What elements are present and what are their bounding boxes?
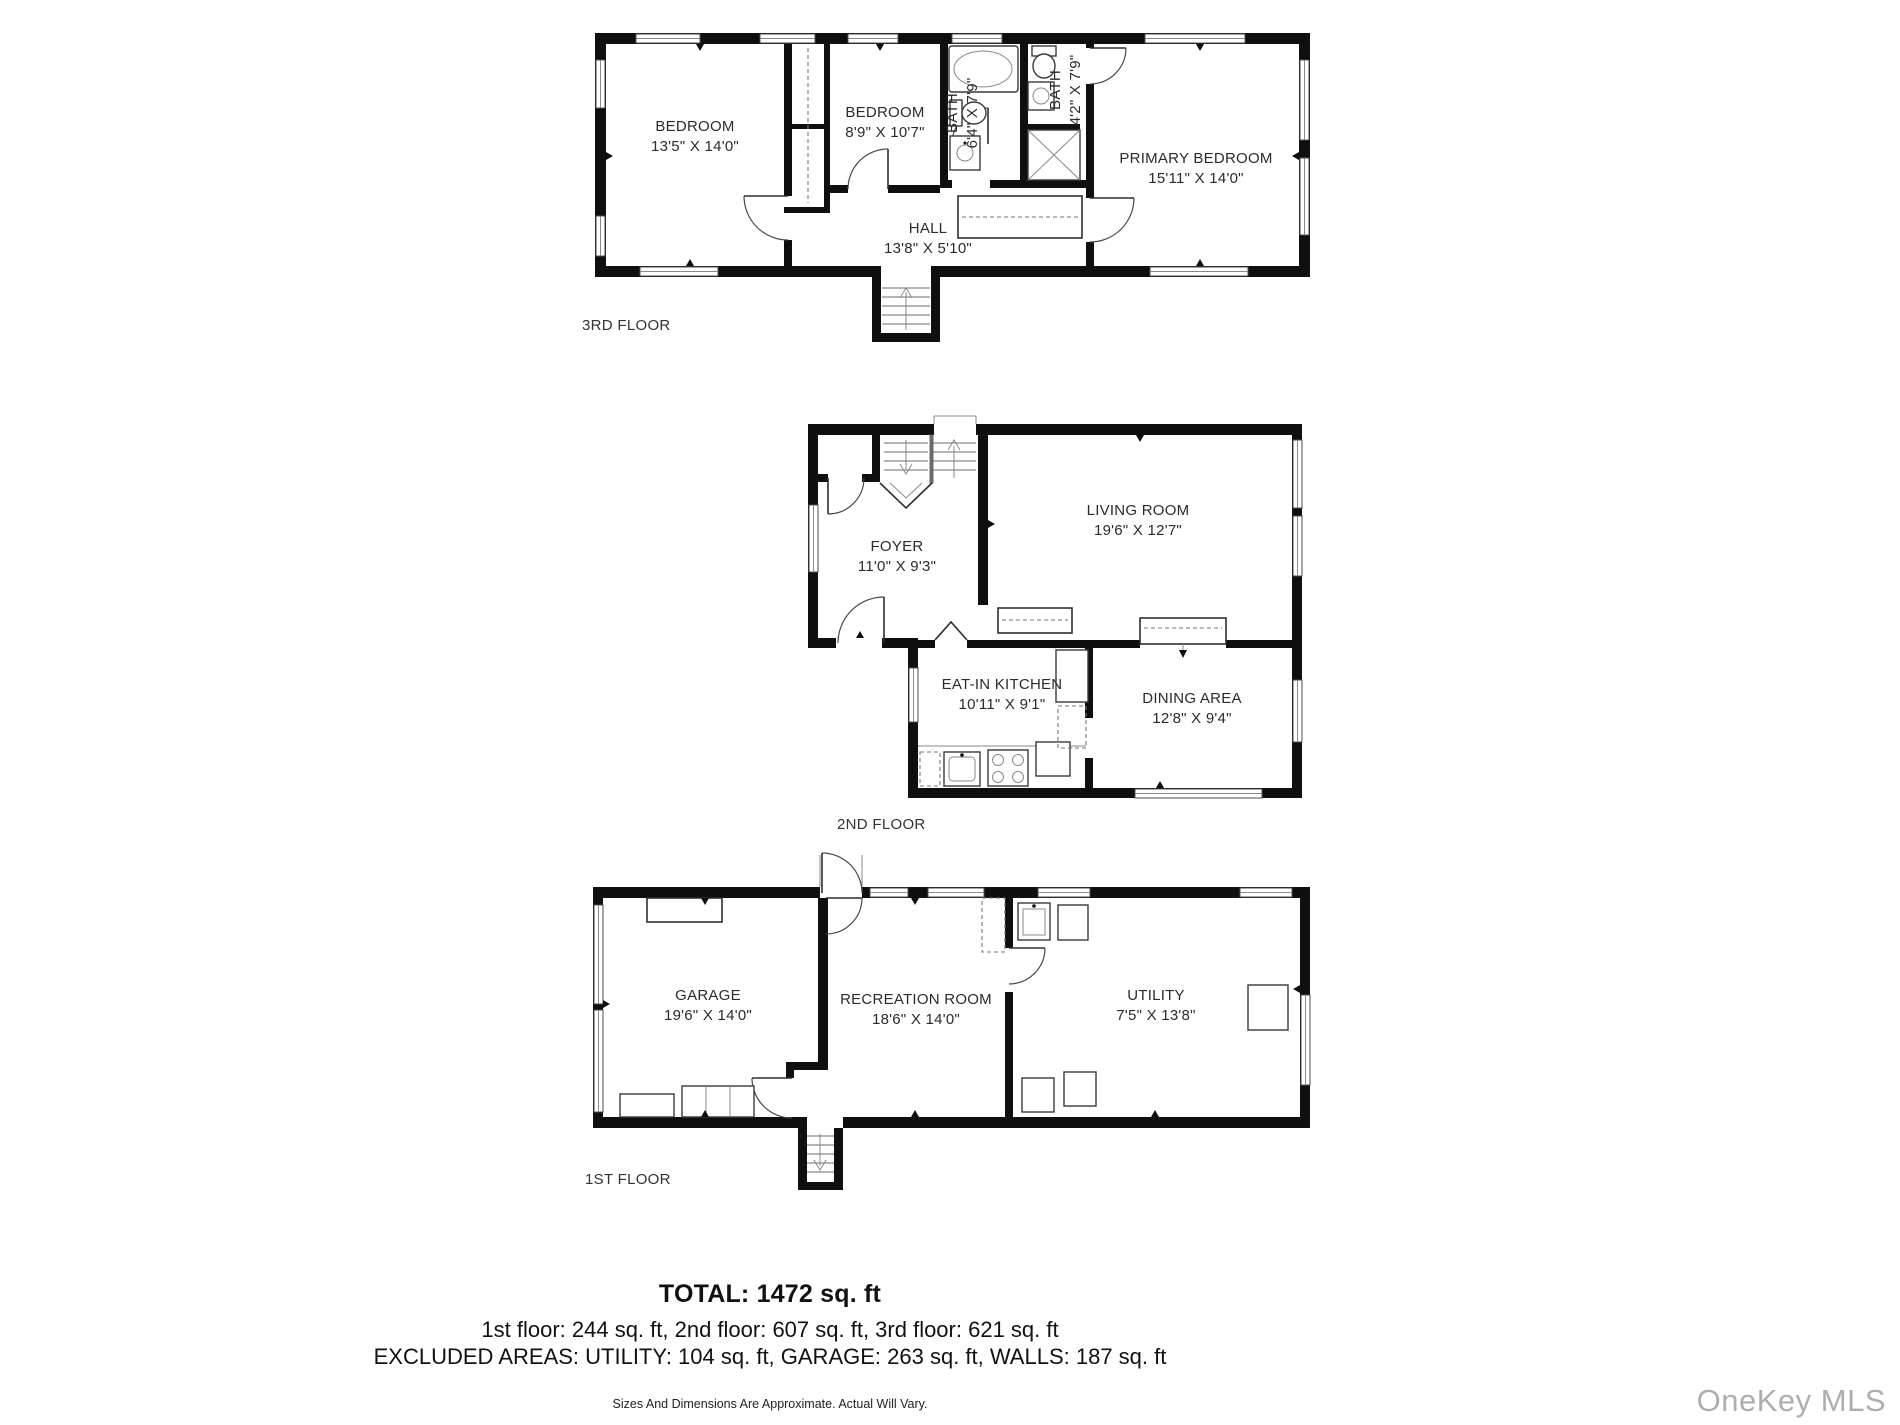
room-label-bath-1: BATH6'4" X 7'9" — [943, 78, 983, 149]
room-label-primary-bedroom: PRIMARY BEDROOM15'11" X 14'0" — [1119, 149, 1272, 189]
laundry-sink-icon — [1018, 903, 1050, 940]
stairs-icon — [807, 1134, 834, 1172]
floor-areas: 1st floor: 244 sq. ft, 2nd floor: 607 sq… — [270, 1316, 1270, 1343]
floor-tag-1st: 1ST FLOOR — [585, 1171, 671, 1188]
room-label-eat-in-kitchen: EAT-IN KITCHEN10'11" X 9'1" — [942, 675, 1063, 715]
shower-icon — [1028, 130, 1080, 180]
stairs-icon — [882, 288, 930, 330]
utility-unit — [1064, 1072, 1096, 1106]
dimension-ticks — [856, 435, 1164, 788]
room-label-bath-2: BATH4'2" X 7'9" — [1046, 55, 1086, 126]
utility-unit — [1022, 1078, 1054, 1112]
water-heater-icon — [1248, 985, 1288, 1030]
floor-plan-sheet: { "floors": [ { "label": "3RD FLOOR", "r… — [0, 0, 1900, 1425]
doors — [828, 478, 1093, 771]
room-label-living-room: LIVING ROOM19'6" X 12'7" — [1087, 501, 1190, 541]
area-summary: TOTAL: 1472 sq. ft 1st floor: 244 sq. ft… — [270, 1280, 1270, 1411]
closet — [982, 898, 1005, 952]
window-seat — [1140, 618, 1226, 658]
room-label-foyer: FOYER11'0" X 9'3" — [858, 537, 936, 577]
workbench — [682, 1086, 754, 1117]
stove-icon — [988, 750, 1028, 786]
room-label-garage: GARAGE19'6" X 14'0" — [664, 986, 752, 1026]
walls — [593, 887, 1310, 1190]
shelf — [620, 1094, 674, 1117]
floor-tag-2nd: 2ND FLOOR — [837, 816, 926, 833]
total-area: TOTAL: 1472 sq. ft — [270, 1280, 1270, 1309]
kitchen-sink-icon — [944, 752, 980, 786]
garage-storage — [647, 898, 722, 922]
room-label-hall: HALL13'8" X 5'10" — [884, 219, 972, 259]
onekey-mls-watermark: OneKey MLS — [1697, 1383, 1886, 1419]
room-label-utility: UTILITY7'5" X 13'8" — [1116, 986, 1195, 1026]
room-label-bedroom-1: BEDROOM13'5" X 14'0" — [651, 117, 739, 157]
washer-icon — [1058, 905, 1088, 940]
room-label-bedroom-2: BEDROOM8'9" X 10'7" — [845, 103, 924, 143]
excluded-areas: EXCLUDED AREAS: UTILITY: 104 sq. ft, GAR… — [270, 1343, 1270, 1370]
cased-opening — [935, 622, 967, 640]
room-label-recreation-room: RECREATION ROOM18'6" X 14'0" — [840, 990, 992, 1030]
floor-tag-3rd: 3RD FLOOR — [582, 317, 671, 334]
disclaimer: Sizes And Dimensions Are Approximate. Ac… — [270, 1397, 1270, 1411]
kitchen-island — [1036, 742, 1070, 776]
sideboard — [998, 608, 1072, 633]
built-in-closet — [958, 196, 1082, 238]
room-label-dining-area: DINING AREA12'8" X 9'4" — [1142, 689, 1241, 729]
floor-plan-2nd — [808, 416, 1302, 798]
